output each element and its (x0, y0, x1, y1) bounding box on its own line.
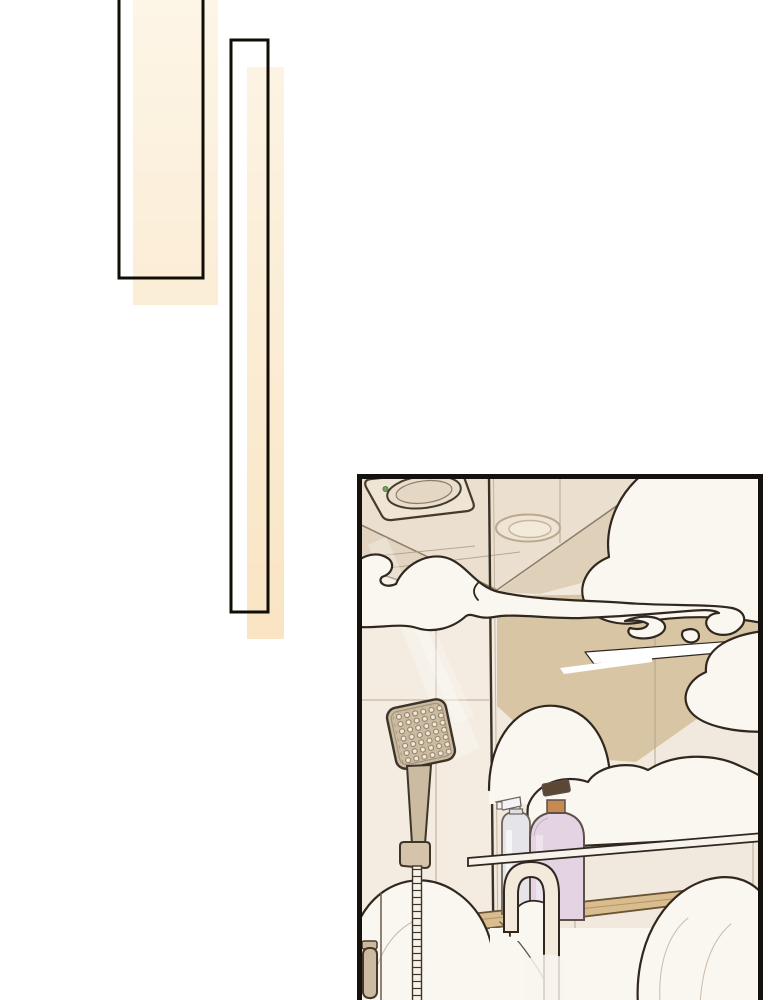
fan-led-light (383, 486, 388, 491)
shower-head-nozzles (392, 703, 452, 764)
decor-bar-wide-shadow (133, 0, 218, 305)
decor-bars (119, 0, 284, 639)
panel-content (348, 460, 775, 1000)
ceiling-light (496, 515, 560, 542)
shower-bracket (400, 842, 430, 868)
decor-bar-narrow-shadow (247, 67, 284, 639)
cloud-curl-small (682, 629, 699, 642)
cloud-curl-large (625, 617, 665, 639)
comic-page-art (0, 0, 782, 1000)
shower-scene-panel (348, 460, 775, 1000)
shower-hose (413, 866, 422, 1000)
